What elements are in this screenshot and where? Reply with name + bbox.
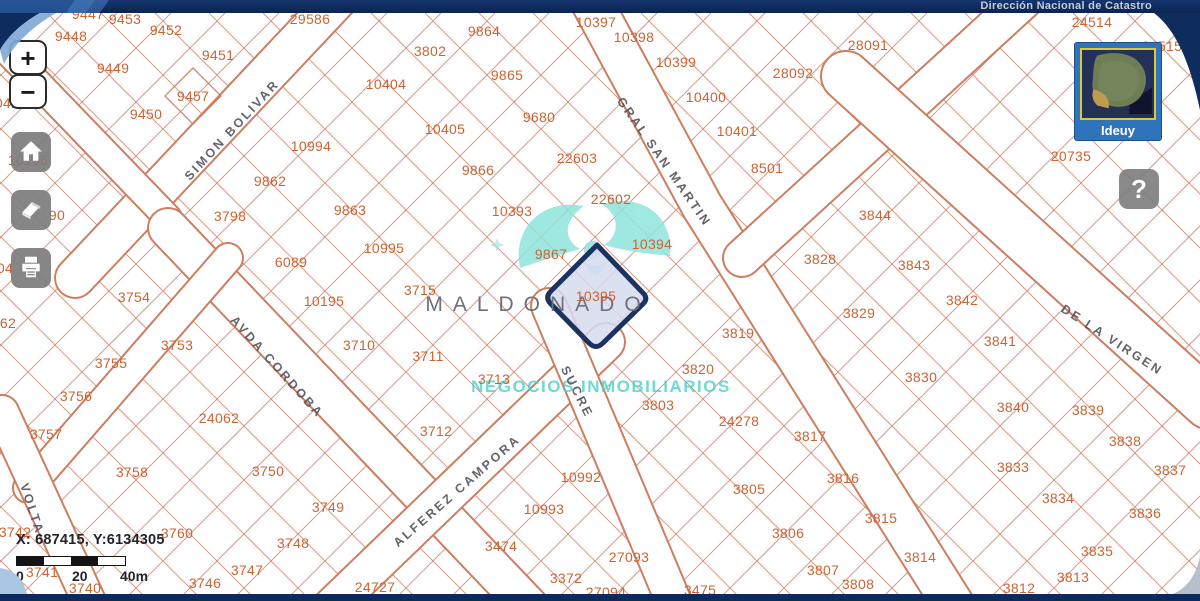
watermark-agency-text: NEGOCIOS INMOBILIARIOS: [471, 377, 731, 397]
print-button[interactable]: [11, 248, 51, 288]
scale-bar: [16, 556, 126, 566]
home-extent-button[interactable]: [11, 132, 51, 172]
eraser-icon: [18, 196, 44, 225]
minimap-label: Ideuy: [1075, 123, 1161, 138]
home-icon: [18, 138, 44, 167]
statusbar: X: 687415, Y:6134305 0 20 40m: [16, 532, 166, 582]
scale-label-start: 0: [16, 568, 24, 584]
watermark-city-text: MALDONADO: [425, 293, 650, 317]
help-button[interactable]: ?: [1119, 169, 1159, 209]
eraser-button[interactable]: [11, 190, 51, 230]
app-title: Dirección Nacional de Catastro: [980, 0, 1152, 13]
scale-label-end: 40m: [120, 568, 148, 584]
scale-label-mid: 20: [72, 568, 88, 584]
printer-icon: [18, 254, 44, 283]
coordinates-readout: X: 687415, Y:6134305: [16, 532, 166, 548]
app-footer-bar: [0, 594, 1200, 601]
cadastre-viewer: MALDONADO NEGOCIOS INMOBILIARIOS 9447944…: [0, 0, 1200, 601]
minimap-satellite-image: [1080, 48, 1156, 120]
scale-labels: 0 20 40m: [16, 566, 166, 582]
minimap-ideuy[interactable]: Ideuy: [1074, 42, 1162, 141]
app-header-bar: Dirección Nacional de Catastro: [0, 0, 1200, 13]
zoom-in-button[interactable]: +: [9, 40, 47, 75]
zoom-out-button[interactable]: −: [9, 74, 47, 109]
